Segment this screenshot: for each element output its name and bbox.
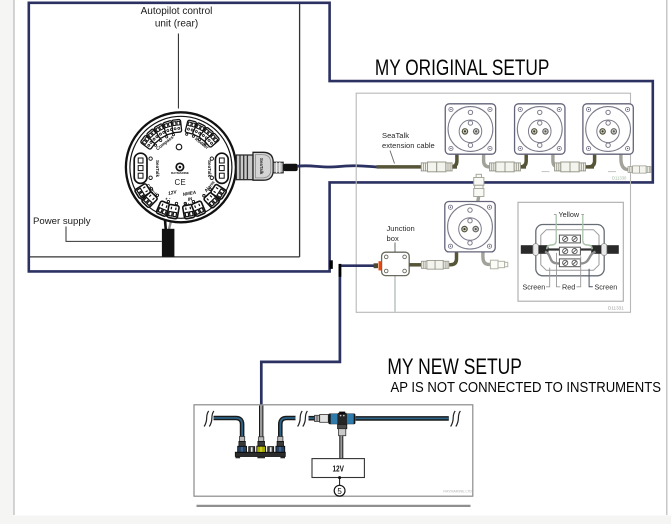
svg-text:D11330: D11330 xyxy=(612,176,627,181)
svg-text:Yellow: Yellow xyxy=(559,210,580,219)
svg-text:MY ORIGINAL SETUP: MY ORIGINAL SETUP xyxy=(375,55,550,80)
svg-text:SeaTalk: SeaTalk xyxy=(207,160,212,177)
svg-text:extension cable: extension cable xyxy=(382,141,435,150)
svg-text:Screen: Screen xyxy=(523,283,546,292)
svg-text:D11331: D11331 xyxy=(608,306,624,311)
svg-text:Autopilot control: Autopilot control xyxy=(141,6,213,17)
svg-text:CE: CE xyxy=(175,178,187,187)
svg-text:Power supply: Power supply xyxy=(33,216,91,227)
svg-text:Red: Red xyxy=(562,283,575,292)
svg-text:box: box xyxy=(387,234,399,243)
svg-text:SeaTalk: SeaTalk xyxy=(259,158,264,175)
svg-text:5: 5 xyxy=(337,487,342,496)
svg-text:SeaTalk: SeaTalk xyxy=(382,131,409,140)
svg-text:RAYMARINE: RAYMARINE xyxy=(171,171,189,175)
svg-text:AP IS NOT CONNECTED TO INSTRUM: AP IS NOT CONNECTED TO INSTRUMENTS xyxy=(391,380,662,396)
svg-text:unit (rear): unit (rear) xyxy=(155,19,198,30)
svg-text:12V: 12V xyxy=(332,465,344,474)
svg-text:SeaTalk: SeaTalk xyxy=(155,160,160,177)
svg-text:Screen: Screen xyxy=(595,283,618,292)
svg-text:RAYMARINE LTD: RAYMARINE LTD xyxy=(443,490,472,494)
svg-text:MY NEW SETUP: MY NEW SETUP xyxy=(387,354,522,379)
svg-text:Junction: Junction xyxy=(387,224,415,233)
